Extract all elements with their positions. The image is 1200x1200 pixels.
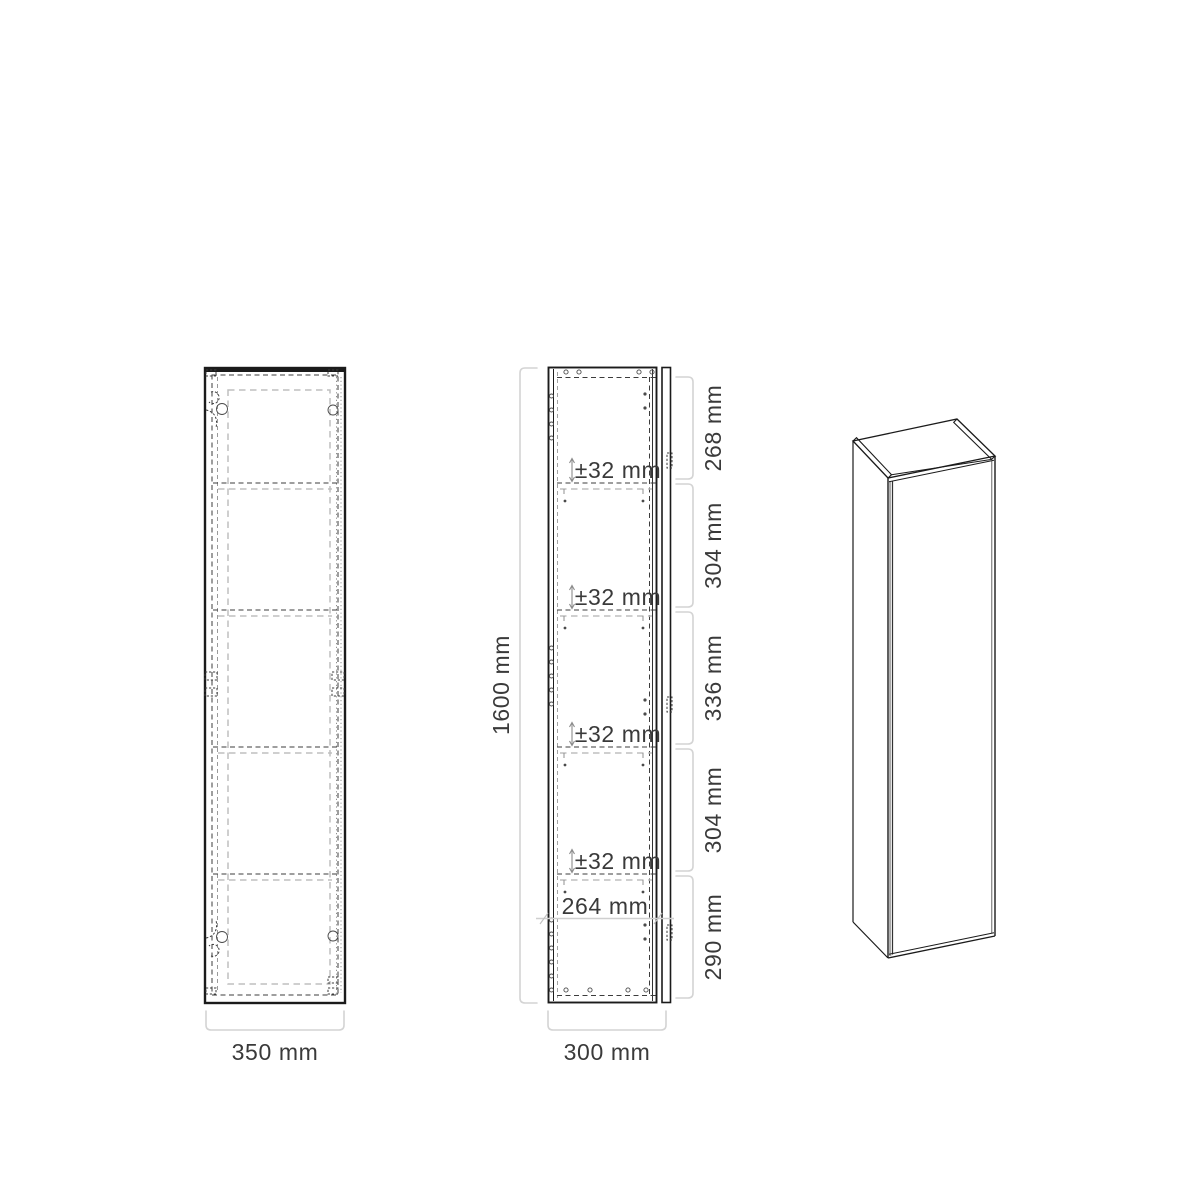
drill-hole bbox=[564, 988, 568, 992]
drill-hole bbox=[644, 988, 648, 992]
drill-hole bbox=[588, 988, 592, 992]
pin-hole bbox=[642, 764, 645, 767]
shelf-adjust-annotation: ±32 mm bbox=[570, 721, 662, 747]
hinge-cup-icon bbox=[217, 932, 228, 943]
height-dimension: 1600 mm bbox=[488, 368, 537, 1003]
pin-hole bbox=[550, 408, 554, 412]
front-width-dimension: 350 mm bbox=[206, 1011, 344, 1065]
iso-top-face bbox=[853, 419, 995, 478]
pin-hole bbox=[550, 960, 554, 964]
pin-hole bbox=[550, 436, 554, 440]
shelf-adjust-label: ±32 mm bbox=[575, 457, 662, 483]
front-width-label: 350 mm bbox=[232, 1039, 319, 1065]
dimension-bracket bbox=[676, 612, 693, 744]
hinge-cup-icon bbox=[217, 404, 228, 415]
side-shelf-lines bbox=[557, 483, 656, 893]
dimension-bracket bbox=[520, 368, 537, 1003]
hinge-screw-hole bbox=[643, 406, 646, 409]
front-view: 350 mm bbox=[205, 368, 345, 1065]
top-drill-holes bbox=[564, 370, 654, 374]
segment-dimension: 304 mm bbox=[676, 484, 726, 607]
front-door-outline bbox=[228, 390, 330, 984]
hinge-plate-icon bbox=[206, 988, 216, 994]
segment-label: 290 mm bbox=[700, 894, 726, 981]
pin-hole bbox=[550, 974, 554, 978]
cabinet-technical-drawing: 350 mm bbox=[0, 0, 1200, 1200]
pin-hole bbox=[550, 646, 554, 650]
segment-dimension: 268 mm bbox=[676, 377, 726, 479]
hinge-screw-hole bbox=[643, 923, 646, 926]
pin-hole bbox=[550, 394, 554, 398]
side-door-edge bbox=[662, 368, 671, 1003]
front-hidden-inner-rect bbox=[212, 375, 338, 995]
side-view: ±32 mm ±32 mm ±32 mm ±32 mm 264 mm bbox=[488, 368, 726, 1066]
segment-label: 336 mm bbox=[700, 635, 726, 722]
drill-hole bbox=[564, 370, 568, 374]
shelf-adjust-annotation: ±32 mm bbox=[570, 848, 662, 874]
pin-hole bbox=[642, 500, 645, 503]
pin-hole bbox=[550, 674, 554, 678]
pin-hole bbox=[550, 422, 554, 426]
hinge-arm-icon bbox=[206, 920, 217, 938]
pin-hole bbox=[550, 932, 554, 936]
drill-hole bbox=[626, 988, 630, 992]
iso-door-top-edge bbox=[889, 460, 994, 482]
iso-bottom-left-edge bbox=[853, 922, 888, 958]
dimension-bracket bbox=[676, 749, 693, 871]
segment-dimension: 290 mm bbox=[676, 876, 726, 998]
front-shelf-lines bbox=[213, 483, 337, 880]
shelf-adjust-annotation: ±32 mm bbox=[570, 457, 662, 483]
shelf-pin-holes bbox=[550, 394, 554, 992]
hinge-screw-hole bbox=[643, 392, 646, 395]
shelf-adjust-annotations: ±32 mm ±32 mm ±32 mm ±32 mm bbox=[570, 457, 662, 874]
pin-hole bbox=[550, 660, 554, 664]
pin-hole bbox=[642, 627, 645, 630]
inner-width-label: 264 mm bbox=[562, 893, 649, 919]
hinge-screw-hole bbox=[643, 698, 646, 701]
shelf-adjust-label: ±32 mm bbox=[575, 584, 662, 610]
iso-top-panel-front-edge bbox=[892, 459, 992, 474]
iso-bottom-front-edge bbox=[888, 936, 995, 958]
hinge-plate-icon bbox=[205, 688, 217, 696]
pin-hole bbox=[550, 688, 554, 692]
inner-width-annotation: 264 mm bbox=[536, 893, 674, 924]
pin-hole bbox=[564, 764, 567, 767]
depth-label: 300 mm bbox=[564, 1039, 651, 1065]
segment-label: 304 mm bbox=[700, 502, 726, 589]
drill-hole bbox=[577, 370, 581, 374]
segment-label: 304 mm bbox=[700, 767, 726, 854]
pin-hole bbox=[564, 627, 567, 630]
depth-dimension: 300 mm bbox=[548, 1011, 666, 1065]
dimension-bracket bbox=[676, 484, 693, 607]
segment-label: 268 mm bbox=[700, 385, 726, 472]
shelf-adjust-label: ±32 mm bbox=[575, 721, 662, 747]
drill-hole bbox=[650, 370, 654, 374]
shelf-adjust-label: ±32 mm bbox=[575, 848, 662, 874]
dimension-bracket bbox=[206, 1011, 344, 1030]
dimension-bracket bbox=[676, 377, 693, 479]
segment-dimension: 304 mm bbox=[676, 749, 726, 871]
shelf-adjust-annotation: ±32 mm bbox=[570, 584, 662, 610]
segment-dimensions: 268 mm 304 mm 336 mm 304 mm 290 mm bbox=[676, 377, 726, 998]
hinge-plate-icon bbox=[205, 672, 217, 680]
dimension-bracket bbox=[676, 876, 693, 998]
pin-hole bbox=[550, 702, 554, 706]
hinge-arm-icon bbox=[206, 410, 217, 428]
dimension-bracket bbox=[548, 1011, 666, 1030]
pin-hole bbox=[550, 988, 554, 992]
front-carcass-outline bbox=[205, 368, 345, 1003]
front-hinge-symbols bbox=[205, 370, 344, 994]
iso-right-rail bbox=[954, 419, 995, 459]
bottom-drill-holes bbox=[564, 988, 648, 992]
iso-view bbox=[853, 419, 995, 958]
height-label: 1600 mm bbox=[488, 635, 514, 735]
segment-dimension: 336 mm bbox=[676, 612, 726, 744]
iso-left-rail bbox=[853, 438, 892, 478]
hinge-screw-hole bbox=[643, 937, 646, 940]
hinge-screw-hole bbox=[643, 712, 646, 715]
pin-hole bbox=[550, 946, 554, 950]
pin-hole bbox=[564, 500, 567, 503]
drill-hole bbox=[637, 370, 641, 374]
iso-door-bottom-edge bbox=[889, 933, 994, 954]
